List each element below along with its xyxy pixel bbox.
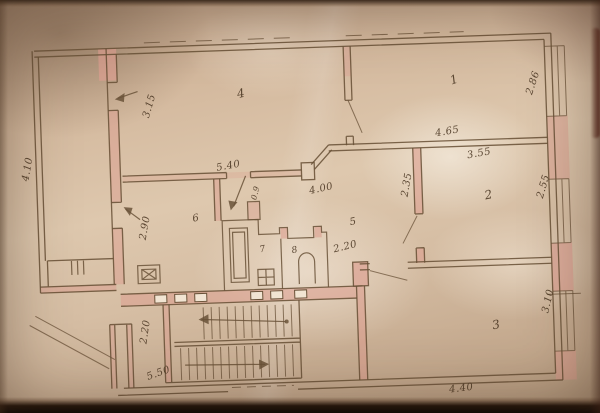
room-6-label: 6 — [191, 212, 200, 224]
dim-room4-width: 3.15 — [141, 93, 158, 119]
toilet-icon — [298, 253, 315, 285]
wall-fill — [547, 116, 570, 180]
dim-corridor-width: 2.35 — [399, 172, 414, 199]
opening — [155, 295, 167, 303]
dim-hall: 2.20 — [331, 239, 358, 256]
photo-bottom-shadow — [0, 397, 600, 413]
room-5-label: 5 — [349, 216, 358, 228]
wall-fill — [353, 262, 369, 287]
door-leaf — [370, 269, 407, 281]
kitchen-door-arrow-icon — [124, 207, 133, 216]
window-room1 — [544, 46, 566, 117]
opening — [295, 290, 307, 298]
stairs — [163, 300, 302, 383]
labels: 4 1 2 3 5 6 7 8 4.10 3.15 5.40 2.90 4.00… — [17, 69, 560, 411]
dim-balcony: 4.10 — [20, 156, 35, 183]
room-7-label: 7 — [259, 244, 267, 255]
wall-fill — [280, 227, 287, 238]
room-4-label: 4 — [235, 86, 246, 101]
opening — [195, 293, 207, 301]
balcony-door-arrow-icon — [115, 93, 125, 102]
stair-walls — [163, 300, 302, 383]
window-room2 — [549, 179, 571, 244]
stair-arrow-up-icon — [285, 319, 289, 323]
photo-top-shadow — [0, 0, 600, 7]
wall-room2-room3 — [360, 257, 552, 270]
dim-room3-length: 4.40 — [448, 382, 475, 396]
entrance-door-dashes — [232, 385, 294, 387]
wall-pier — [301, 162, 315, 179]
dim-room4-length: 5.40 — [215, 159, 241, 174]
room-2-label: 2 — [482, 187, 493, 202]
bath-toilet-wall — [281, 239, 283, 289]
floorplan-drawing: 4 1 2 3 5 6 7 8 4.10 3.15 5.40 2.90 4.00… — [0, 0, 600, 413]
dim-door: 0.9 — [249, 185, 261, 201]
door-arrow-icon — [228, 200, 237, 210]
photo-left-shadow — [0, 0, 8, 413]
porch-lines — [29, 314, 115, 372]
radiator-icon — [71, 261, 83, 275]
room-1-label: 1 — [448, 72, 460, 88]
wall-fill — [314, 226, 321, 237]
wall-fill — [247, 201, 260, 219]
stair-treads-lower — [181, 344, 294, 380]
opening — [271, 291, 283, 299]
dim-room2-length: 3.55 — [466, 146, 492, 161]
dim-room1-width: 2.86 — [524, 70, 542, 98]
floor-plan: 4 1 2 3 5 6 7 8 4.10 3.15 5.40 2.90 4.00… — [16, 28, 585, 411]
wall-left — [32, 51, 46, 293]
window-room3 — [553, 291, 575, 352]
wall-room1-room2 — [329, 137, 548, 151]
wall-fill — [416, 248, 425, 263]
wall-fill — [551, 243, 574, 292]
wall-fill — [123, 170, 302, 182]
stair-arrow-down-icon — [259, 359, 269, 369]
dim-stair-width: 2.20 — [138, 319, 152, 346]
bathtub-icon — [233, 232, 247, 278]
opening — [251, 291, 263, 299]
dim-room1-length: 4.65 — [433, 124, 460, 139]
fixtures — [66, 85, 329, 296]
sink-icon — [258, 269, 275, 286]
door-leaf — [348, 100, 362, 133]
photo-edge-blotch — [591, 28, 600, 138]
wall-fill — [555, 350, 577, 380]
room-8-label: 8 — [291, 245, 299, 256]
floorplan-photo: 4 1 2 3 5 6 7 8 4.10 3.15 5.40 2.90 4.00… — [0, 0, 600, 413]
room-3-label: 3 — [491, 317, 502, 332]
opening — [175, 294, 187, 302]
wall-bottom — [118, 373, 563, 396]
wall-fills — [32, 33, 577, 398]
vent-shaft-icon — [142, 269, 156, 279]
dim-corridor-length: 4.00 — [307, 181, 334, 197]
door-leaf — [402, 216, 418, 244]
wall-right — [544, 33, 563, 380]
